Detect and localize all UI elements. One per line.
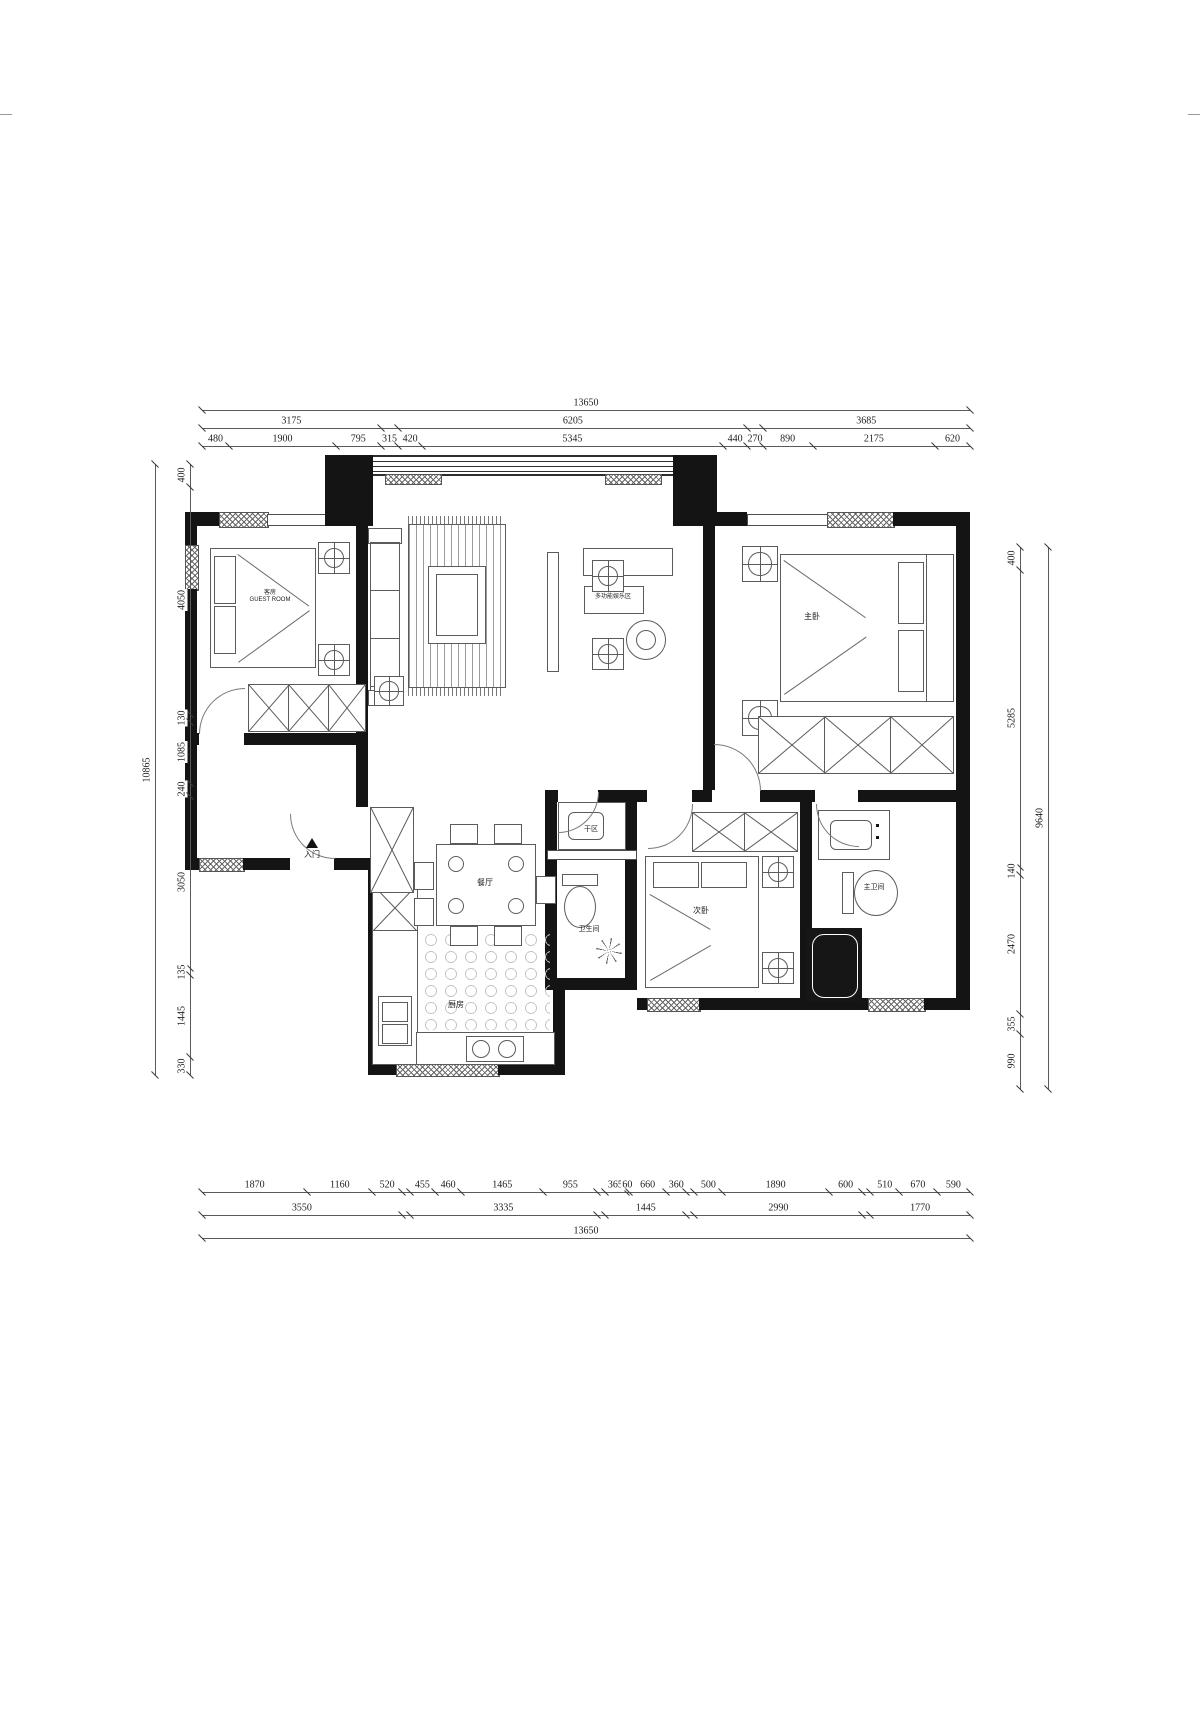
mbath-toilet-tank (842, 872, 854, 914)
dimension-line-bottom-detail (202, 1192, 970, 1193)
dining-chair (450, 824, 478, 844)
living-label: 多功能娱乐区 (585, 594, 641, 601)
bedroom2-wardrobe (744, 812, 798, 852)
wall-dry-divider (547, 850, 637, 860)
wall (760, 790, 815, 802)
window-entry-bottom (199, 858, 245, 872)
guest-room-label: 客房 GUEST ROOM (238, 590, 302, 604)
wall-left (185, 589, 197, 870)
wall-light (747, 514, 829, 526)
wall (692, 790, 712, 802)
dimension-line-top-detail (202, 446, 970, 447)
plate (508, 898, 524, 914)
wall-right (956, 512, 970, 1010)
plate (508, 856, 524, 872)
dry-area-label: 干区 (562, 826, 620, 834)
faucet-dot (876, 824, 879, 827)
entry-marker-icon (306, 838, 318, 848)
dining-chair (536, 876, 556, 904)
nightstand-light-symbol (742, 546, 778, 582)
ceiling-light-symbol (318, 644, 350, 676)
master-bedroom-label: 主卧 (792, 612, 832, 622)
bedroom2-pillow (653, 862, 699, 888)
ceiling-light-symbol (592, 638, 624, 670)
dining-chair (414, 862, 434, 890)
master-bed-pillow (898, 630, 924, 692)
wall-bath-right (625, 802, 637, 978)
master-wardrobe (758, 716, 826, 774)
stove-burner (498, 1040, 516, 1058)
wall (717, 512, 747, 526)
toilet-bowl (564, 886, 596, 928)
dimension-line-top-groups (202, 428, 970, 429)
wall (598, 790, 647, 802)
hall-cabinet (370, 807, 414, 893)
toilet-tank (562, 874, 598, 886)
floor-plan: 客房 GUEST ROOM 多功能娱乐区 (0, 0, 1200, 1709)
wall (637, 998, 647, 1010)
wall (185, 858, 199, 870)
coffee-table-inner (436, 574, 478, 636)
wall (545, 790, 558, 802)
master-wardrobe (890, 716, 954, 774)
window-sill-hatch (605, 474, 662, 485)
window-living-top (373, 455, 673, 476)
wall (924, 998, 970, 1010)
guest-wardrobe (288, 684, 330, 732)
dimension-line-bottom-overall (202, 1238, 970, 1239)
mbath-label: 主卫间 (848, 884, 900, 892)
stool-inner (636, 630, 656, 650)
guest-wardrobe (248, 684, 290, 732)
master-door-arc (714, 744, 761, 791)
plate (448, 898, 464, 914)
rug-fringe (408, 688, 504, 696)
dimension-line-left-detail (190, 464, 191, 1075)
kitchen-sink-bowl (382, 1024, 408, 1044)
media-console (547, 552, 559, 672)
guest-room-name: 客房 (264, 590, 276, 596)
wall-bath-bottom (545, 978, 637, 990)
window-guest-top (219, 512, 269, 528)
dimension-line-left-overall (155, 464, 156, 1075)
guest-bed-pillow (214, 606, 236, 654)
wall-guest-bottom (244, 733, 368, 745)
dining-chair (494, 824, 522, 844)
master-bed-pillow (898, 562, 924, 624)
bathroom-label: 卫生间 (558, 926, 620, 934)
wall-light (267, 514, 327, 526)
guest-wardrobe (328, 684, 366, 732)
window-bedroom2-bottom (647, 998, 701, 1012)
dining-chair (414, 898, 434, 926)
dimension-line-right-detail (1020, 547, 1021, 1089)
wall (243, 858, 290, 870)
master-bed-headboard (926, 554, 954, 702)
ceiling-light-symbol (592, 560, 624, 592)
guest-door-arc (199, 688, 245, 734)
window-guest-left (185, 545, 199, 591)
shower-symbol (596, 938, 622, 964)
dimension-line-top-overall (202, 410, 970, 411)
kitchen-sink-bowl (382, 1002, 408, 1022)
dining-chair (494, 926, 522, 946)
dining-chair (450, 926, 478, 946)
master-wardrobe (824, 716, 892, 774)
bedroom2-pillow (701, 862, 747, 888)
window-mbath-bottom (868, 998, 926, 1012)
dimension-line-right-overall (1048, 547, 1049, 1089)
window-master-top (827, 512, 895, 528)
entry-label: 入门 (296, 850, 328, 860)
guest-bed-pillow (214, 556, 236, 604)
bathtub-inner (812, 934, 858, 998)
wall (334, 858, 368, 870)
ceiling-light-symbol (762, 856, 794, 888)
window-sill-hatch (385, 474, 442, 485)
bedroom2-label: 次卧 (681, 906, 721, 916)
stove-burner (472, 1040, 490, 1058)
dimension-line-bottom-groups (202, 1215, 970, 1216)
bedroom2-door-arc (648, 804, 693, 849)
dining-label: 餐厅 (465, 878, 505, 888)
wall-pier-right (673, 455, 717, 526)
guest-room-subtitle: GUEST ROOM (250, 597, 291, 603)
wall (858, 790, 970, 802)
wall-entry-right (356, 745, 368, 807)
rug-fringe (408, 516, 504, 524)
floor-plan-sheet: 客房 GUEST ROOM 多功能娱乐区 (0, 0, 1200, 1709)
sofa (370, 542, 400, 692)
kitchen-label: 厨房 (436, 1000, 476, 1010)
bedroom2-wardrobe (692, 812, 746, 852)
faucet-dot (876, 836, 879, 839)
ceiling-light-symbol (318, 542, 350, 574)
window-kitchen-bottom (396, 1063, 500, 1077)
ceiling-light-symbol (374, 676, 404, 706)
plate (448, 856, 464, 872)
ceiling-light-symbol (762, 952, 794, 984)
mbath-toilet-bowl (854, 870, 898, 916)
wall-left (185, 512, 197, 545)
